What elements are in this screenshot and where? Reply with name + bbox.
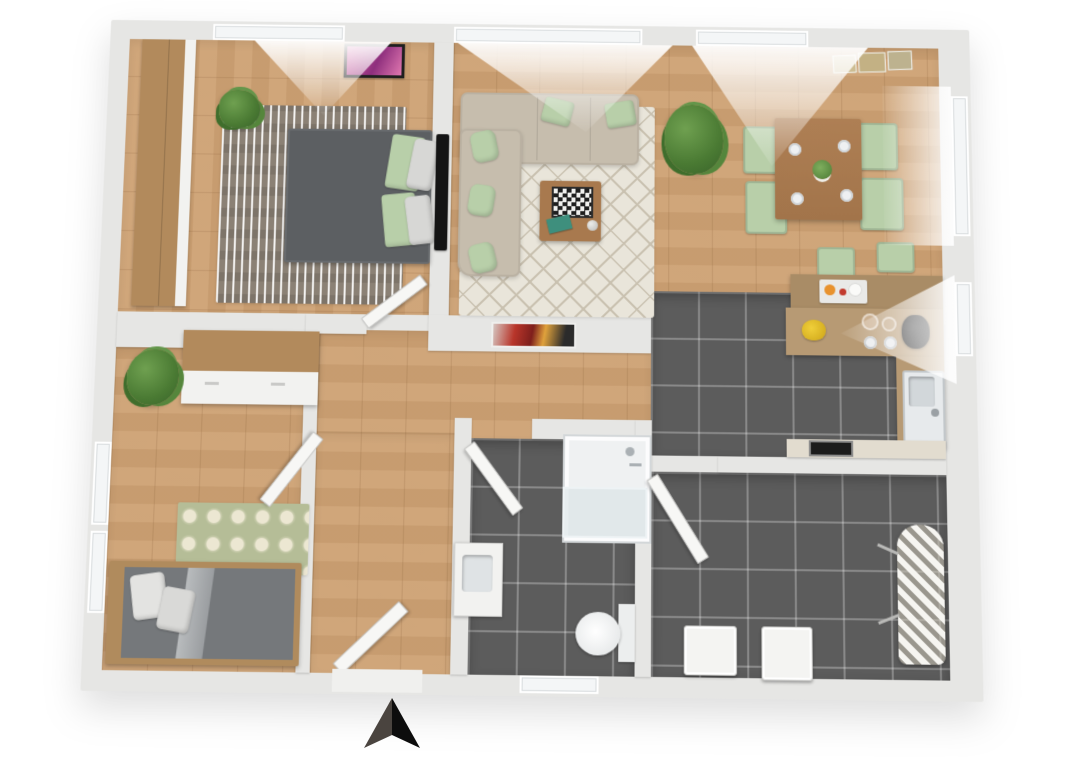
bedroom1-wall-art-pink: [344, 43, 405, 78]
washing-machine: [684, 625, 737, 676]
window-kitchen-east: [955, 282, 973, 356]
window-living-north: [454, 27, 642, 45]
shower-handle: [629, 463, 641, 466]
toilet-bowl: [575, 612, 620, 656]
table-centerpiece-plant: [812, 160, 832, 180]
window-dining-east: [951, 96, 971, 236]
toilet-tank: [618, 604, 635, 662]
kitchen-jar-2: [882, 317, 897, 332]
decor-ball: [587, 220, 598, 231]
bar-chair-2: [876, 242, 914, 273]
plate-4: [840, 189, 853, 202]
sink-basin: [908, 376, 935, 406]
entrance-threshold: [332, 669, 423, 693]
tray-food-orange: [824, 284, 835, 295]
shower-fixture: [625, 447, 634, 456]
bedroom1-plant: [218, 89, 261, 128]
north-arrow-right-half: [392, 698, 420, 748]
hallway-floor-vertical: [310, 431, 455, 674]
tray-food-plate: [848, 283, 862, 297]
dresser-handle-2: [271, 383, 285, 386]
sofa-cushion-2: [604, 100, 637, 129]
window-bathroom-south: [519, 675, 598, 694]
bedroom1-wall-tv: [434, 134, 449, 250]
sink-faucet: [931, 409, 939, 417]
plate-1: [789, 143, 802, 156]
dresser-sideboard: [181, 330, 320, 405]
vanity-basin: [462, 555, 493, 592]
dining-wall-print-1: [832, 55, 857, 74]
window-bedroom2-west-b: [87, 531, 108, 613]
window-dining-north: [696, 30, 808, 47]
fruit-basket-yellow: [802, 320, 826, 341]
wall-utility-north: [718, 456, 946, 475]
dining-wall-print-3: [887, 51, 912, 71]
ironing-board: [897, 524, 946, 665]
north-arrow-icon: [362, 698, 422, 750]
dining-wall-print-2: [858, 52, 886, 73]
utility-appliance-2: [761, 626, 813, 681]
shower-glass: [562, 487, 647, 539]
north-arrow-left-half: [364, 698, 392, 748]
kitchen-jar-4: [884, 336, 897, 349]
sofa-cushion-4: [466, 183, 496, 217]
window-bedroom1-north: [213, 24, 345, 42]
kitchen-jar-3: [864, 336, 877, 349]
dresser-handle-1: [205, 382, 219, 385]
oven: [809, 440, 854, 457]
chessboard: [552, 187, 594, 219]
dining-large-plant: [664, 104, 723, 174]
dining-chair-4: [860, 178, 904, 231]
plate-2: [838, 140, 851, 153]
coffee-machine: [901, 315, 930, 349]
floor-plan: [80, 20, 983, 702]
living-wall-art-red: [491, 322, 576, 349]
tray-food-red: [839, 289, 846, 296]
kitchen-jar-1: [862, 313, 879, 330]
dining-chair-3: [856, 123, 898, 171]
plate-3: [791, 192, 804, 205]
